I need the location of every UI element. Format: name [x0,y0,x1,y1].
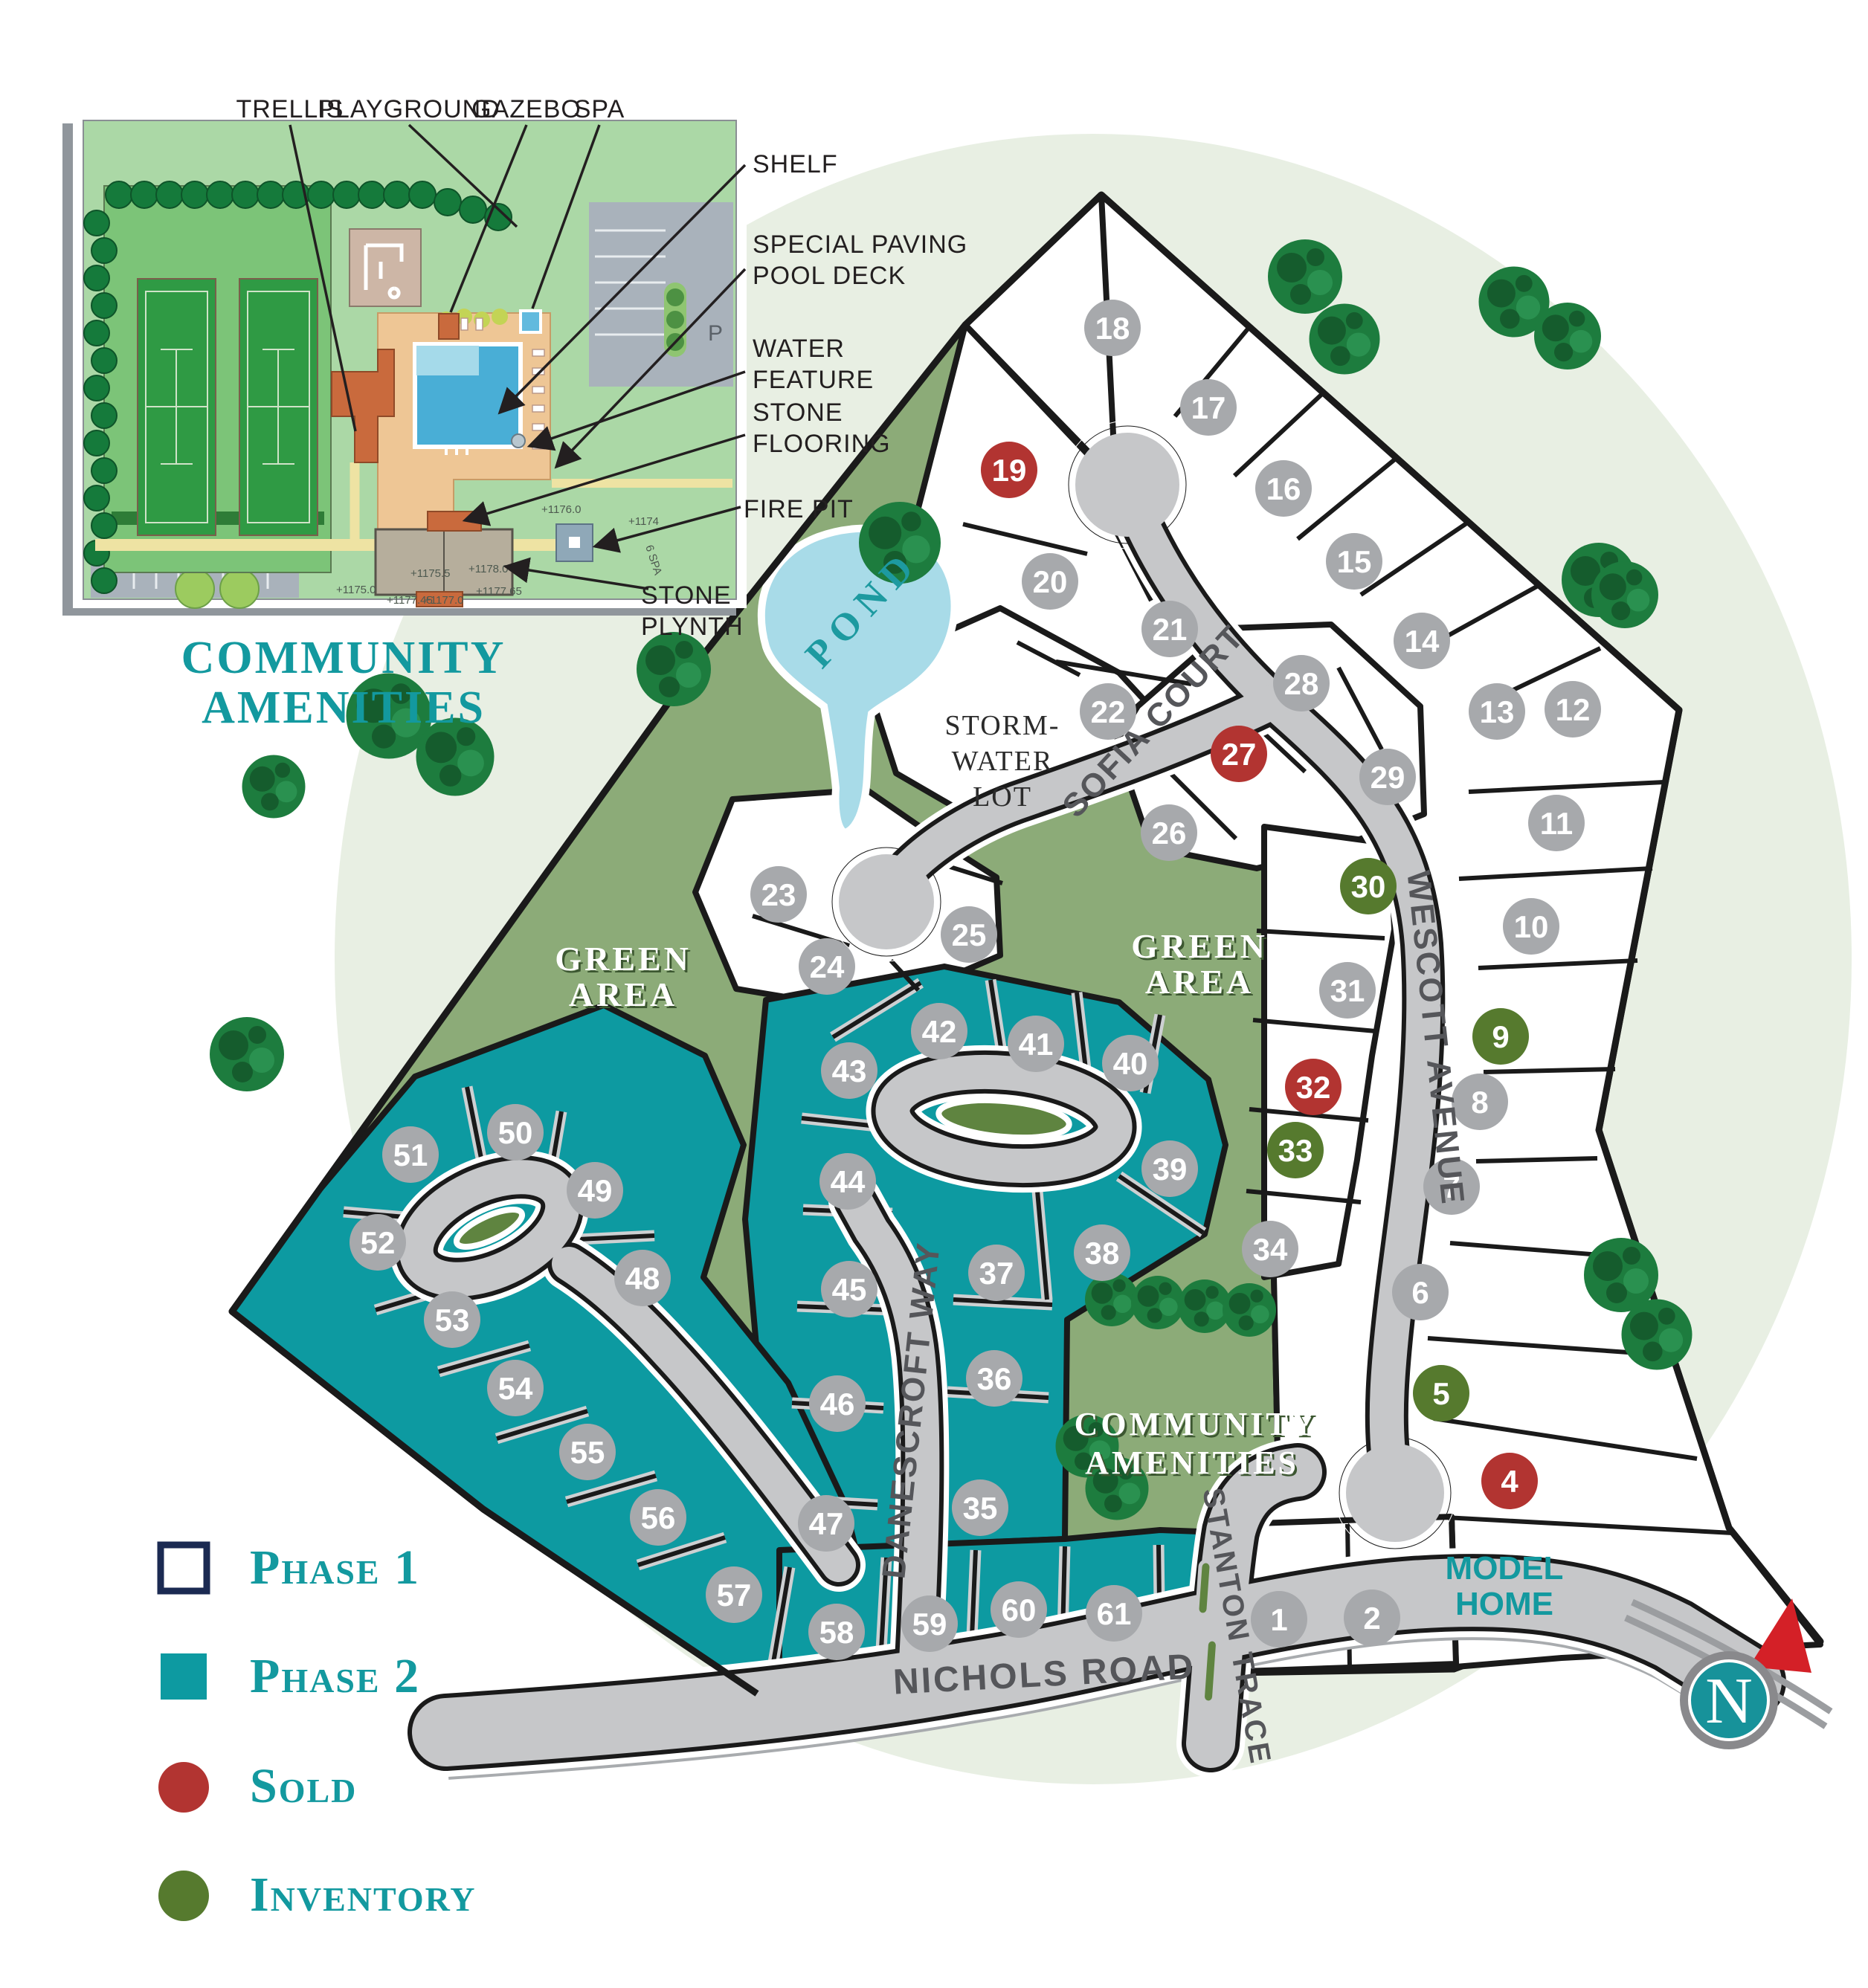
svg-text:46: 46 [820,1387,855,1421]
lot-badge: 55 [559,1424,616,1480]
svg-text:GREEN: GREEN [555,940,692,978]
svg-text:45: 45 [832,1272,867,1307]
lot-badge: 45 [821,1261,877,1317]
pool-shelf [416,346,479,375]
svg-text:28: 28 [1284,666,1319,701]
tennis-court [138,279,216,535]
lot-badge: 49 [567,1162,623,1219]
lot-badge: 25 [941,906,997,963]
tree-icon [1310,304,1380,375]
lot-badge: 20 [1022,553,1078,610]
svg-text:+1177.45: +1177.45 [387,594,433,607]
inset-tree-icon [333,181,360,208]
stone-flooring-label-1: STONE [753,398,843,427]
svg-text:18: 18 [1095,311,1130,346]
lot-badge: 10 [1503,898,1559,955]
inset-tree-icon [257,181,284,208]
tree-icon [1268,239,1342,314]
lot-badge: 26 [1141,804,1197,861]
svg-text:53: 53 [435,1303,470,1337]
inset-title: COMMUNITY AMENITIES [181,633,506,733]
stone-plynth-label-1: STONE [641,581,732,610]
inset-tree-icon [106,181,132,208]
inset-tree-icon [232,181,259,208]
svg-text:57: 57 [717,1578,752,1613]
lot-badge: 42 [911,1003,967,1059]
svg-text:12: 12 [1556,692,1591,727]
svg-text:2: 2 [1363,1601,1380,1636]
legend-label-phase2: Phase 2 [250,1649,420,1703]
lot-badge: 5 [1413,1365,1469,1421]
inset-tree-icon [207,181,233,208]
stone-flooring-porch [428,511,481,531]
svg-text:COMMUNITY: COMMUNITY [181,633,506,683]
svg-text:STORM-: STORM- [945,710,1060,741]
svg-text:22: 22 [1091,694,1126,729]
lot-badge: 50 [487,1104,544,1161]
svg-text:49: 49 [578,1173,613,1208]
svg-text:MODEL: MODEL [1446,1550,1564,1587]
tree-icon [242,755,306,819]
lot-badge: 35 [952,1479,1008,1536]
svg-text:26: 26 [1152,816,1187,851]
lot-badge: 48 [614,1250,671,1306]
tennis-court [239,279,318,535]
inset-tree-icon [384,181,410,208]
inset-tree-icon [434,189,461,216]
lot-badge: 54 [487,1360,544,1416]
lot-badge: 39 [1141,1140,1198,1197]
legend-swatch-inventory [158,1871,209,1921]
svg-text:61: 61 [1097,1596,1132,1631]
svg-text:51: 51 [393,1137,428,1172]
water-feature-label-1: WATER [753,335,845,363]
lot-badge: 1 [1251,1591,1307,1647]
svg-text:8: 8 [1471,1085,1488,1120]
svg-text:AREA: AREA [1145,963,1254,1001]
lot-badge: 18 [1084,300,1141,356]
lot-badge: 47 [798,1495,854,1552]
svg-text:34: 34 [1253,1232,1288,1267]
svg-text:5: 5 [1432,1376,1449,1411]
svg-text:54: 54 [498,1371,533,1406]
lot-badge: 52 [350,1214,406,1271]
compass-north-label: N [1705,1665,1753,1737]
svg-text:42: 42 [922,1014,957,1049]
svg-text:47: 47 [809,1506,844,1541]
lot-badge: 61 [1086,1585,1142,1642]
lot-badge: 58 [808,1604,865,1660]
svg-text:43: 43 [832,1053,867,1088]
gazebo [439,314,459,339]
shelf-label: SHELF [753,150,838,178]
svg-text:23: 23 [761,877,796,912]
lot-badge: 9 [1472,1008,1529,1065]
svg-text:20: 20 [1033,564,1068,599]
svg-text:WATER: WATER [952,746,1054,777]
lot-badge: 28 [1273,655,1330,711]
svg-text:55: 55 [570,1435,605,1470]
svg-text:AMENITIES: AMENITIES [1085,1445,1299,1481]
special-paving-label-1: SPECIAL PAVING [753,230,967,259]
svg-text:COMMUNITY: COMMUNITY [1075,1406,1318,1442]
lot-badge: 59 [901,1595,958,1652]
svg-text:+1176.0: +1176.0 [541,503,582,516]
lot-badge: 31 [1319,962,1376,1019]
inset-tree-icon [84,320,109,346]
svg-text:15: 15 [1337,544,1372,579]
svg-text:30: 30 [1351,869,1386,904]
svg-text:21: 21 [1153,612,1188,647]
svg-text:11: 11 [1540,806,1573,841]
legend-label-inventory: Inventory [250,1868,476,1922]
tree-icon [1622,1300,1693,1370]
site-plan-map: 1245678910111213141516171819202122232425… [0,0,1868,1988]
svg-text:10: 10 [1514,909,1549,944]
tree-icon [1131,1276,1185,1329]
svg-text:35: 35 [963,1491,998,1526]
inset-tree-icon [91,403,117,428]
lot-badge: 40 [1102,1035,1159,1091]
svg-text:19: 19 [992,453,1027,488]
lot-badge: 19 [981,442,1037,498]
stanton-median [1202,1639,1218,1703]
svg-text:+1175.0: +1175.0 [336,584,376,596]
svg-text:25: 25 [952,917,987,952]
svg-text:+1177.65: +1177.65 [476,585,522,598]
inset-tree-icon [358,181,385,208]
lot-badge: 13 [1469,683,1525,740]
svg-text:4: 4 [1501,1464,1518,1499]
lot-badge: 43 [821,1042,877,1099]
svg-text:AMENITIES: AMENITIES [202,682,486,733]
svg-text:6: 6 [1411,1275,1429,1310]
lot-badge: 6 [1392,1264,1449,1320]
lot-badge: 32 [1285,1059,1342,1115]
community-amenities-label: COMMUNITY AMENITIES COMMUNITY AMENITIES [1075,1406,1320,1483]
fire-pit-label: FIRE PIT [744,495,854,523]
lot-badge: 2 [1344,1590,1400,1646]
inset-tree-icon [84,265,109,291]
svg-text:37: 37 [979,1256,1014,1291]
island-tree [666,288,684,306]
svg-text:41: 41 [1019,1027,1054,1062]
svg-text:+1174: +1174 [628,515,659,528]
svg-text:31: 31 [1330,973,1365,1008]
lot-badge: 38 [1074,1224,1130,1281]
stone-plynth-label-2: PLYNTH [641,613,744,641]
inset-tree-icon [84,210,109,236]
lot-badge: 15 [1326,533,1382,590]
svg-text:50: 50 [498,1115,533,1150]
lot-badge: 24 [799,938,855,995]
tree-icon [1223,1283,1276,1337]
legend-swatch-phase2 [161,1653,207,1700]
inset-tree-icon [91,568,117,593]
svg-text:36: 36 [977,1361,1012,1396]
svg-text:39: 39 [1153,1152,1188,1187]
fire-pit-center [569,537,580,548]
stanton-median [1197,1561,1212,1616]
spa-label: SPA [574,95,625,123]
svg-text:59: 59 [912,1607,947,1642]
lot-badge: 36 [966,1350,1022,1407]
model-home-label: MODEL HOME [1446,1550,1564,1622]
svg-text:HOME: HOME [1455,1586,1553,1622]
legend-swatch-sold [158,1762,209,1813]
svg-text:17: 17 [1191,390,1226,425]
svg-text:GREEN: GREEN [1131,927,1268,965]
special-paving-label-2: POOL DECK [753,262,906,290]
svg-text:1: 1 [1270,1602,1287,1637]
inset-tree-icon [84,485,109,511]
svg-text:27: 27 [1222,737,1257,772]
water-feature-icon [512,434,525,448]
inset-tree-icon [460,196,486,223]
lot-badge: 12 [1545,681,1601,738]
svg-text:+1175.5: +1175.5 [410,567,451,580]
svg-text:56: 56 [641,1500,676,1535]
svg-text:13: 13 [1480,694,1515,729]
svg-text:LOT: LOT [973,781,1032,813]
inset-tree-icon [91,458,117,483]
lot-badge: 23 [750,866,807,923]
svg-text:44: 44 [831,1164,866,1199]
parking-p-label: P [708,321,723,346]
inset-tree-icon [91,238,117,263]
spa [521,311,541,332]
svg-text:38: 38 [1085,1236,1120,1271]
playground [350,229,421,306]
svg-text:48: 48 [625,1261,660,1296]
gazebo-label: GAZEBO [471,95,582,123]
svg-text:24: 24 [810,949,845,984]
lot-badge: 14 [1394,613,1450,669]
svg-text:14: 14 [1405,624,1440,659]
lot-badge: 27 [1211,726,1267,782]
lot-badge: 37 [968,1245,1025,1301]
svg-text:AREA: AREA [569,975,677,1013]
inset-tree-icon [84,430,109,456]
svg-text:32: 32 [1296,1070,1331,1105]
tree-icon [637,632,711,706]
svg-text:29: 29 [1371,760,1405,795]
inset-tree-icon [91,513,117,538]
inset-tree-icon [308,181,335,208]
svg-text:52: 52 [361,1225,396,1260]
lot-badge: 21 [1141,601,1198,657]
green-area-label-right: GREEN AREA GREEN AREA [1131,927,1270,1003]
lot-badge: 17 [1180,379,1237,436]
lot-badge: 53 [424,1291,480,1348]
legend-label-phase1: Phase 1 [250,1540,420,1595]
inset-tree-icon [181,181,208,208]
svg-text:16: 16 [1266,471,1301,506]
lot-badge: 4 [1481,1453,1538,1509]
svg-text:+1178.0: +1178.0 [468,563,509,575]
lot-badge: 33 [1267,1122,1324,1178]
parking-tree [175,569,214,608]
lot-badge: 11 [1528,795,1585,851]
lot-badge: 56 [630,1489,686,1546]
inset-tree-icon [91,348,117,373]
legend-label-sold: Sold [250,1759,357,1813]
lot-badge: 51 [382,1126,439,1183]
parking-tree [220,569,259,608]
svg-text:40: 40 [1113,1046,1148,1081]
island-tree [666,311,684,329]
legend-swatch-phase1 [161,1545,207,1591]
lot-badge: 57 [706,1566,762,1623]
svg-text:33: 33 [1278,1133,1313,1168]
lot-badge: 30 [1340,858,1397,914]
inset-tree-icon [84,375,109,401]
lot-badge: 29 [1359,749,1416,805]
inset-tree-icon [131,181,158,208]
tree-icon [210,1017,284,1091]
tree-icon [1085,1273,1138,1326]
inset-tree-icon [409,181,436,208]
lot-badge: 60 [991,1581,1047,1638]
green-area-label-left: GREEN AREA GREEN AREA [555,940,694,1016]
tree-icon [1591,561,1658,628]
lot-badge: 34 [1242,1221,1298,1277]
lot-badge: 41 [1008,1016,1064,1072]
svg-text:9: 9 [1492,1019,1509,1054]
svg-text:58: 58 [819,1615,854,1650]
tree-icon [1534,303,1601,369]
water-feature-label-2: FEATURE [753,366,874,394]
svg-text:60: 60 [1002,1592,1037,1627]
inset-tree-icon [91,293,117,318]
lot-badge: 46 [809,1375,866,1432]
lot-badge: 16 [1255,460,1312,517]
inset-tree-icon [156,181,183,208]
lot-badge: 44 [819,1153,876,1210]
stone-flooring-label-2: FLOORING [753,430,891,458]
